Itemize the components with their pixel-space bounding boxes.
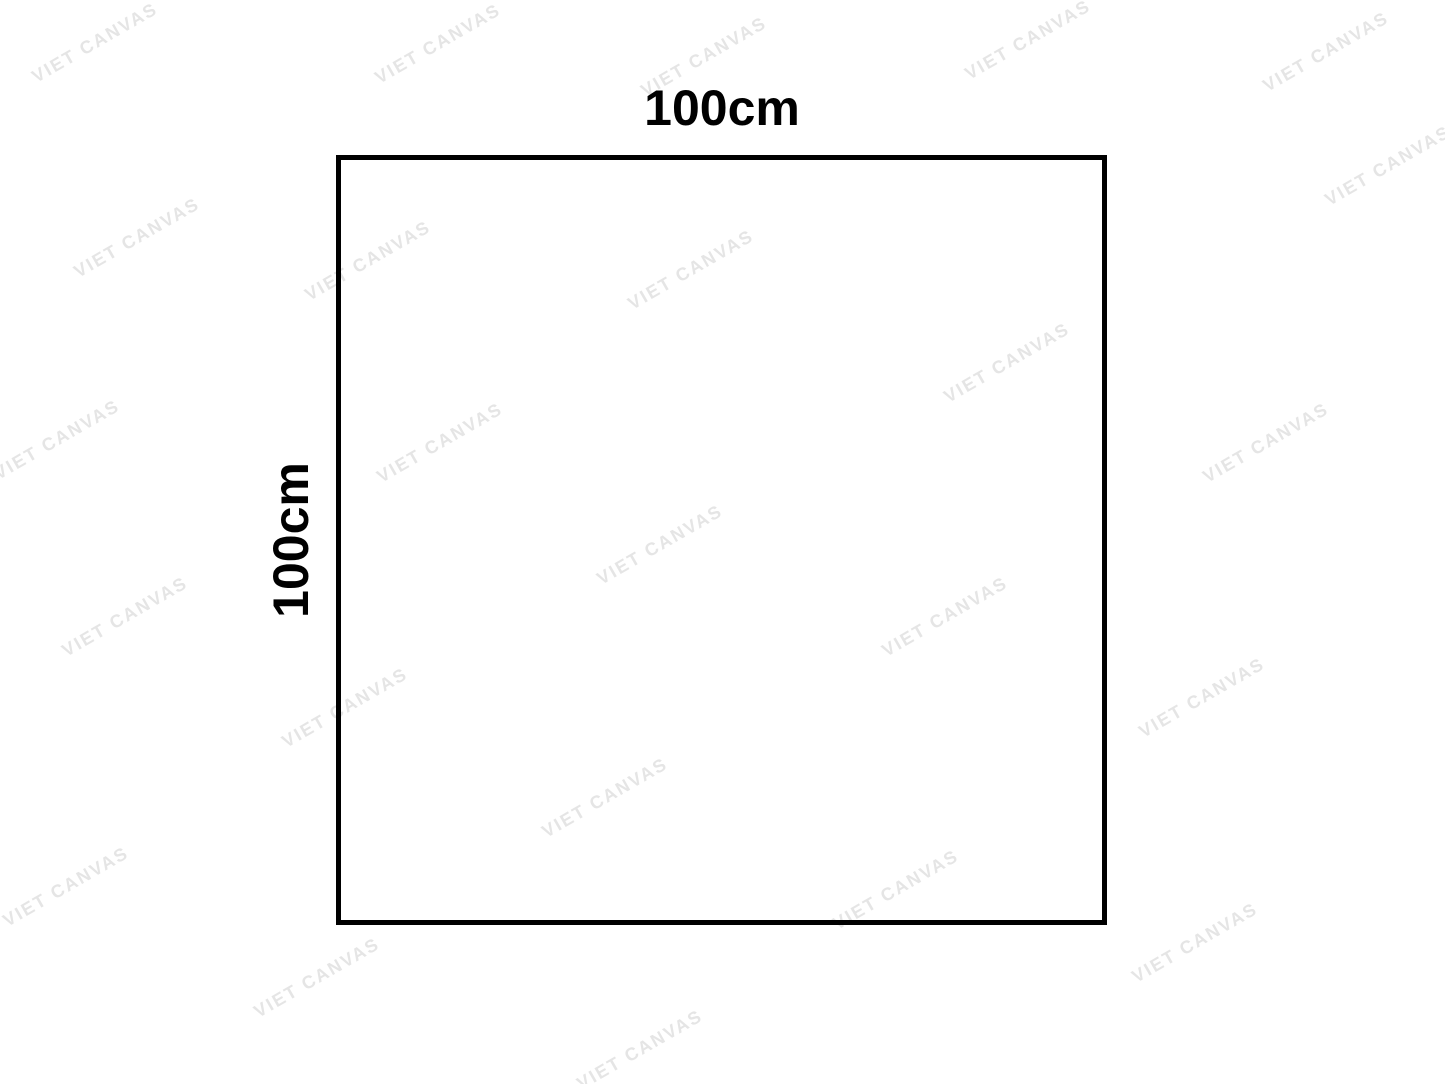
watermark-text: VIET CANVAS	[371, 0, 504, 89]
watermark-text: VIET CANVAS	[1321, 121, 1445, 210]
canvas-outline-square	[336, 155, 1107, 925]
watermark-text: VIET CANVAS	[1259, 7, 1392, 96]
watermark-text: VIET CANVAS	[1199, 398, 1332, 487]
watermark-text: VIET CANVAS	[250, 933, 383, 1022]
size-diagram: VIET CANVASVIET CANVASVIET CANVASVIET CA…	[0, 0, 1445, 1084]
watermark-text: VIET CANVAS	[70, 193, 203, 282]
watermark-text: VIET CANVAS	[0, 395, 124, 484]
watermark-text: VIET CANVAS	[573, 1005, 706, 1084]
watermark-text: VIET CANVAS	[1128, 898, 1261, 987]
width-dimension-label: 100cm	[644, 83, 800, 133]
watermark-text: VIET CANVAS	[28, 0, 161, 88]
watermark-text: VIET CANVAS	[58, 572, 191, 661]
watermark-text: VIET CANVAS	[961, 0, 1094, 85]
watermark-text: VIET CANVAS	[0, 842, 133, 931]
watermark-text: VIET CANVAS	[1135, 653, 1268, 742]
height-dimension-label: 100cm	[266, 462, 316, 618]
